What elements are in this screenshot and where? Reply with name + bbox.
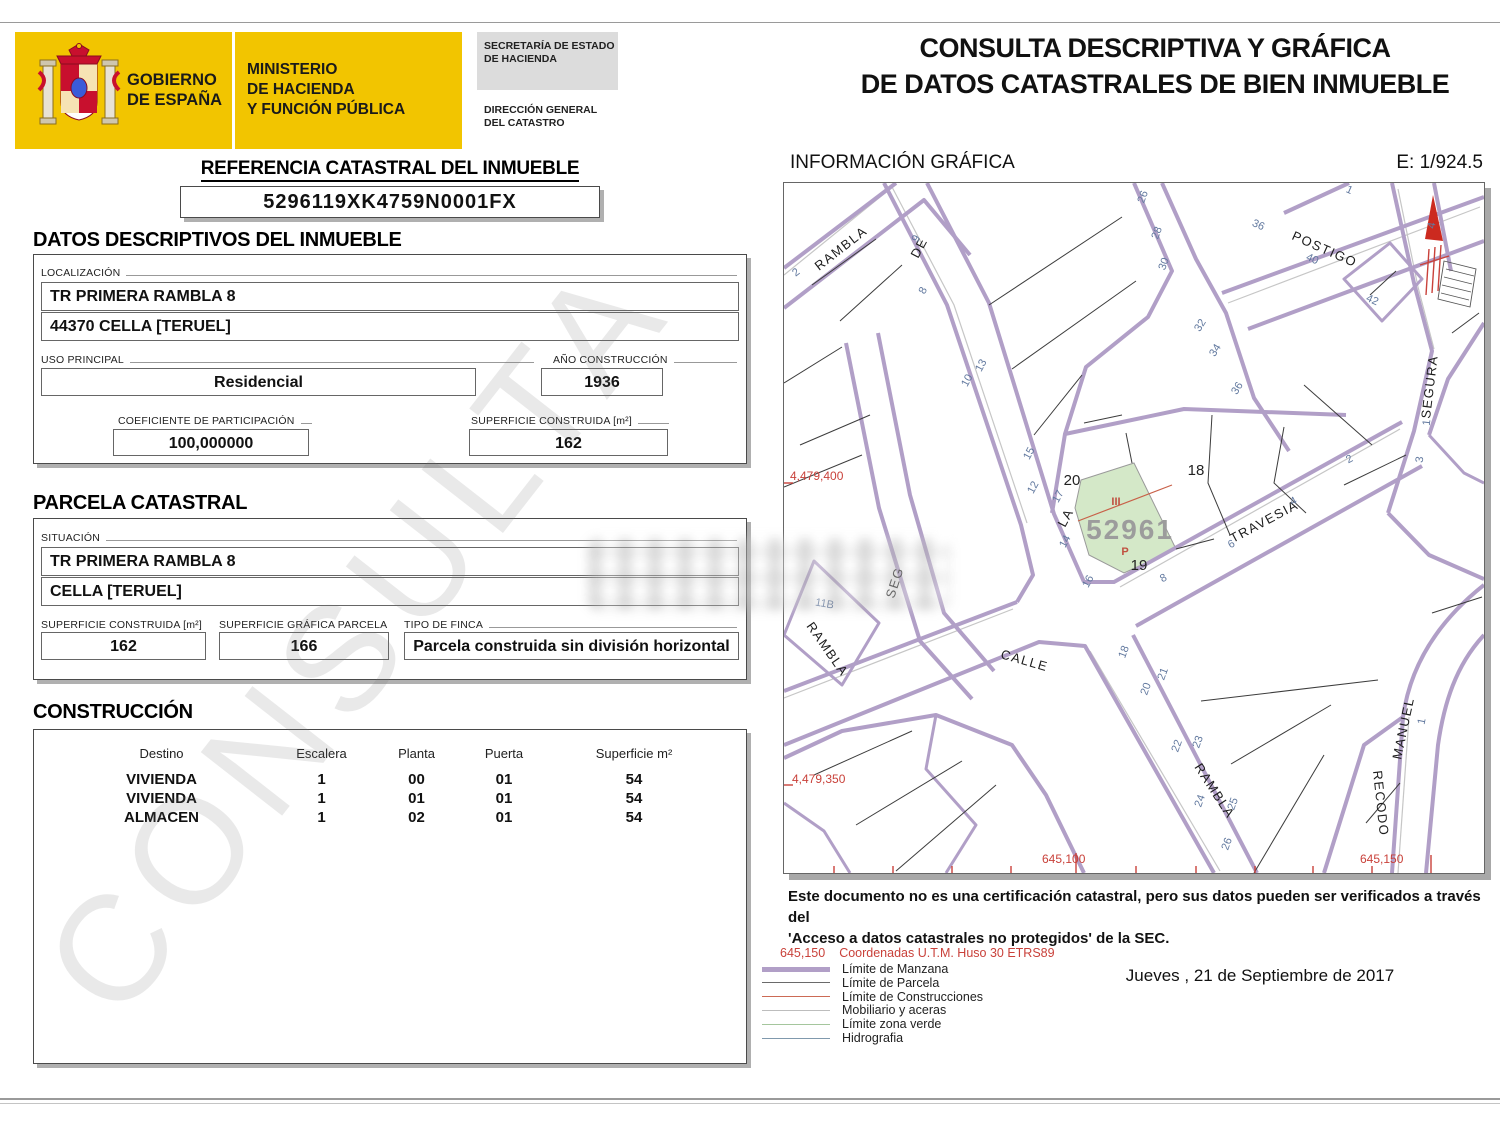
construction-mark: III — [1111, 496, 1120, 508]
house-number: 26 — [1219, 836, 1234, 852]
street-label: RECODO — [1370, 770, 1392, 837]
construction-cell: VIVIENDA — [54, 789, 269, 808]
legend-item-label: Límite de Parcela — [842, 976, 939, 990]
cadastral-map-svg: RAMBLADEPOSTIGOTRAVESIALASEGURASEGCALLER… — [784, 183, 1484, 873]
uso-principal-field: Residencial — [41, 368, 476, 396]
legend-item-label: Límite de Manzana — [842, 962, 948, 976]
house-number: 2 — [790, 266, 802, 279]
uso-principal-label: USO PRINCIPAL — [41, 354, 536, 366]
parcel-number: 18 — [1188, 462, 1205, 479]
bottom-rule-2 — [0, 1103, 1500, 1104]
utm-legend-row: 645,150 Coordenadas U.T.M. Huso 30 ETRS8… — [780, 946, 1055, 960]
construction-cell: 1 — [269, 770, 374, 789]
subject-parcel-number: 52961 — [1086, 514, 1174, 545]
portal-mark: P — [1121, 546, 1128, 558]
cadastral-reference-value: 5296119XK4759N0001FX — [180, 186, 600, 218]
house-number: 32 — [1192, 317, 1209, 334]
construction-cell: VIVIENDA — [54, 770, 269, 789]
house-number: 28 — [1149, 225, 1164, 241]
construction-cell: ALMACEN — [54, 808, 269, 827]
legend-item-label: Mobiliario y aceras — [842, 1003, 946, 1017]
parcela-sup-construida-field: 162 — [41, 632, 206, 660]
street-label: RAMBLA — [804, 619, 852, 679]
sup-grafica-field: 166 — [219, 632, 389, 660]
construction-cell: 1 — [269, 789, 374, 808]
legend-swatch — [762, 1024, 830, 1025]
street-label: CALLE — [999, 646, 1050, 674]
construction-cell: 54 — [549, 808, 719, 827]
house-number: 3 — [1414, 456, 1427, 464]
utm-coordinate: 4,479,400 — [790, 469, 844, 483]
construction-row: VIVIENDA1000154 — [54, 770, 719, 789]
parcela-panel: SITUACIÓN TR PRIMERA RAMBLA 8 CELLA [TER… — [33, 518, 747, 680]
localizacion-label: LOCALIZACIÓN — [41, 267, 739, 279]
legend-item-label: Límite zona verde — [842, 1017, 941, 1031]
legend-swatch — [762, 1038, 830, 1039]
legend-item-label: Hidrografia — [842, 1031, 903, 1045]
house-number: 20 — [1138, 681, 1153, 697]
ano-construccion-field: 1936 — [541, 368, 663, 396]
house-number: 22 — [1169, 738, 1184, 754]
house-number: 34 — [1207, 342, 1224, 359]
house-number: 18 — [1116, 644, 1131, 660]
legend-item: Límite de Parcela — [762, 976, 939, 990]
construction-cell: 00 — [374, 770, 459, 789]
spain-coat-of-arms-icon — [33, 42, 125, 145]
banner-divider — [232, 32, 235, 149]
parcela-sup-construida-label: SUPERFICIE CONSTRUIDA [m²] — [41, 619, 206, 631]
utm-coordinate: 4,479,350 — [792, 772, 846, 786]
house-number: 14 — [1057, 533, 1073, 549]
secretaria-box: SECRETARÍA DE ESTADO DE HACIENDA — [477, 32, 618, 90]
grafica-heading: INFORMACIÓN GRÁFICA — [790, 152, 1015, 174]
construction-cell: 01 — [459, 789, 549, 808]
cadastral-map: RAMBLADEPOSTIGOTRAVESIALASEGURASEGCALLER… — [783, 182, 1485, 874]
construction-column-header: Puerta — [459, 746, 549, 761]
house-number: 36 — [1250, 217, 1266, 233]
house-number: 24 — [1192, 793, 1207, 809]
construction-cell: 01 — [374, 789, 459, 808]
ano-construccion-label: AÑO CONSTRUCCIÓN — [553, 354, 739, 366]
bottom-rule — [0, 1098, 1500, 1100]
house-number: 25 — [1225, 796, 1240, 812]
construction-row: VIVIENDA1010154 — [54, 789, 719, 808]
construction-table-body: VIVIENDA1000154VIVIENDA1010154ALMACEN102… — [54, 770, 719, 827]
house-number: 1 — [1416, 717, 1429, 725]
construction-cell: 01 — [459, 770, 549, 789]
parcel-number: 19 — [1131, 557, 1148, 574]
superficie-construida-field: 162 — [469, 429, 668, 456]
legend-swatch — [762, 996, 830, 997]
construccion-heading: CONSTRUCCIÓN — [33, 701, 193, 724]
coeficiente-field: 100,000000 — [113, 429, 309, 456]
direccion-general-label: DIRECCIÓN GENERAL DEL CATASTRO — [484, 104, 597, 130]
top-rule — [0, 22, 1500, 23]
street-label: RAMBLA — [1191, 760, 1238, 821]
house-number: 8 — [1158, 572, 1169, 585]
situacion-line1-field: TR PRIMERA RAMBLA 8 — [41, 547, 739, 576]
construccion-panel: DestinoEscaleraPlantaPuertaSuperficie m²… — [33, 729, 747, 1064]
parcel-number: 20 — [1064, 472, 1081, 489]
stairs-hatch — [1438, 261, 1476, 307]
construction-column-header: Superficie m² — [549, 746, 719, 761]
superficie-construida-label: SUPERFICIE CONSTRUIDA [m²] — [471, 415, 671, 427]
descriptive-heading: DATOS DESCRIPTIVOS DEL INMUEBLE — [33, 229, 402, 252]
street-label: MANUEL — [1389, 696, 1417, 761]
legend-item: Límite zona verde — [762, 1017, 941, 1031]
house-number: 21 — [1155, 666, 1170, 682]
document-date: Jueves , 21 de Septiembre de 2017 — [1050, 966, 1470, 986]
map-scale-label: E: 1/924.5 — [1360, 152, 1483, 174]
coeficiente-label: COEFICIENTE DE PARTICIPACIÓN — [118, 415, 314, 427]
construction-table-header: DestinoEscaleraPlantaPuertaSuperficie m² — [54, 746, 719, 761]
construction-cell: 01 — [459, 808, 549, 827]
house-number: 12 — [1025, 479, 1041, 495]
legend-swatch — [762, 982, 830, 983]
construction-column-header: Escalera — [269, 746, 374, 761]
ministry-label: MINISTERIO DE HACIENDA Y FUNCIÓN PÚBLICA — [247, 60, 405, 120]
descriptive-panel: LOCALIZACIÓN TR PRIMERA RAMBLA 8 44370 C… — [33, 254, 747, 464]
construction-cell: 54 — [549, 770, 719, 789]
construction-column-header: Planta — [374, 746, 459, 761]
construction-cell: 1 — [269, 808, 374, 827]
utm-coordinate: 645,100 — [1042, 852, 1086, 866]
reference-heading: REFERENCIA CATASTRAL DEL INMUEBLE — [100, 158, 680, 180]
document-title: CONSULTA DESCRIPTIVA Y GRÁFICA DE DATOS … — [825, 30, 1485, 102]
localizacion-line1-field: TR PRIMERA RAMBLA 8 — [41, 282, 739, 311]
legend-item: Hidrografia — [762, 1031, 903, 1045]
government-banner: GOBIERNO DE ESPAÑA MINISTERIO DE HACIEND… — [15, 32, 462, 149]
localizacion-line2-field: 44370 CELLA [TERUEL] — [41, 312, 739, 341]
legend-item: Mobiliario y aceras — [762, 1003, 946, 1017]
house-number: 8 — [917, 285, 930, 296]
house-number: 26 — [1135, 189, 1150, 205]
house-number: 23 — [1190, 734, 1205, 750]
utm-legend-label: Coordenadas U.T.M. Huso 30 ETRS89 — [839, 946, 1054, 960]
construction-cell: 54 — [549, 789, 719, 808]
legend-swatch — [762, 1010, 830, 1011]
government-label: GOBIERNO DE ESPAÑA — [127, 70, 222, 110]
legend-item-label: Límite de Construcciones — [842, 990, 983, 1004]
construction-row: ALMACEN1020154 — [54, 808, 719, 827]
legend-swatch — [762, 967, 830, 972]
house-number: 11B — [814, 597, 835, 612]
disclaimer-text: Este documento no es una certificación c… — [788, 886, 1488, 949]
parcela-heading: PARCELA CATASTRAL — [33, 492, 247, 515]
tipo-finca-field: Parcela construida sin división horizont… — [404, 632, 739, 660]
construction-column-header: Destino — [54, 746, 269, 761]
situacion-line2-field: CELLA [TERUEL] — [41, 577, 739, 606]
construction-cell: 02 — [374, 808, 459, 827]
situacion-label: SITUACIÓN — [41, 532, 739, 544]
legend-item: Límite de Manzana — [762, 962, 948, 976]
utm-sample-value: 645,150 — [780, 946, 825, 960]
tipo-finca-label: TIPO DE FINCA — [404, 619, 739, 631]
utm-coordinate: 645,150 — [1360, 852, 1404, 866]
legend-item: Límite de Construcciones — [762, 990, 983, 1004]
house-number: 36 — [1229, 380, 1246, 397]
